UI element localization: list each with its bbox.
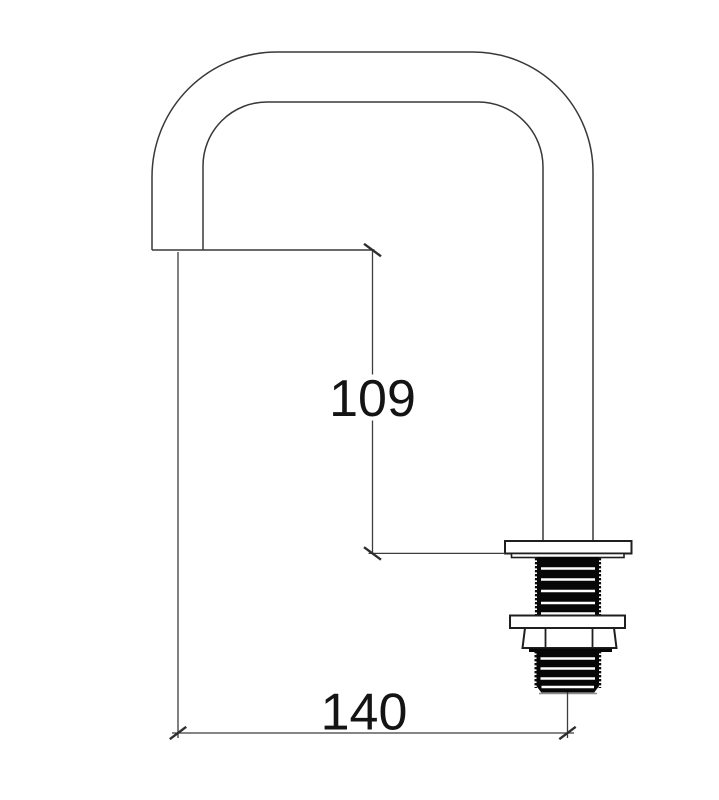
dimension-109: 109 — [329, 244, 505, 560]
thread-block-upper — [538, 558, 599, 616]
drawing-canvas: 109 140 — [0, 0, 719, 800]
flange-body — [505, 541, 632, 554]
dimension-label-109: 109 — [329, 370, 416, 428]
mounting-flange — [505, 541, 632, 558]
faucet-technical-drawing: 109 140 — [0, 0, 719, 800]
lock-nut — [523, 628, 617, 652]
flange-bevel — [512, 554, 625, 558]
nut-body — [523, 628, 617, 648]
backing-washer — [510, 616, 625, 629]
dimension-label-140: 140 — [321, 684, 408, 742]
shank-thread-upper — [536, 558, 600, 616]
shank-thread-lower — [536, 650, 600, 694]
